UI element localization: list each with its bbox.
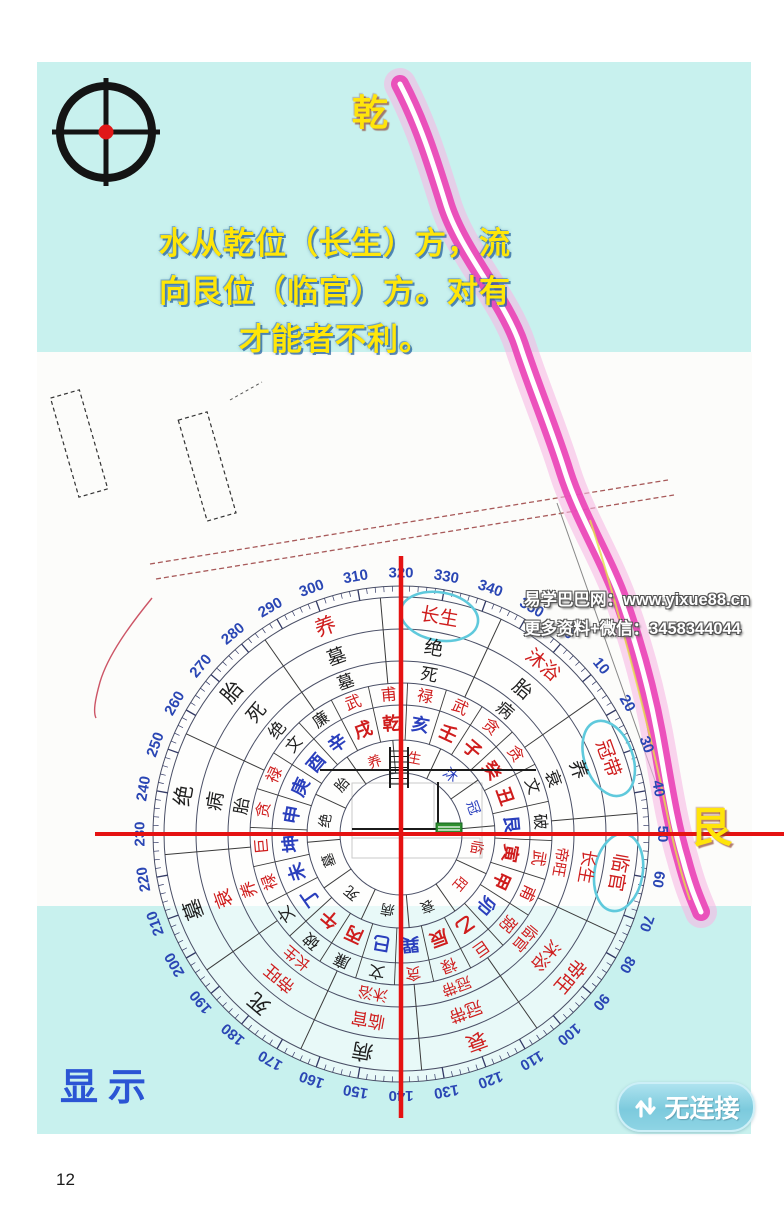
- gen-direction-label: 艮: [690, 794, 732, 855]
- stage-ring-middle-label: 病: [203, 790, 228, 813]
- stage-ring-outer-label: 绝: [171, 783, 197, 808]
- connection-status-button[interactable]: 无连接: [617, 1082, 755, 1132]
- degree-label: 160: [297, 1067, 326, 1092]
- degree-label: 80: [616, 953, 639, 976]
- degree-label: 90: [589, 990, 613, 1014]
- display-button[interactable]: 显示: [60, 1056, 156, 1111]
- caption-line-2: 向艮位（临官）方。对有: [88, 268, 582, 316]
- mountains-ring-label: 乾: [381, 712, 401, 734]
- degree-label: 310: [342, 566, 370, 587]
- nine-stars-ring-label: 甫: [380, 685, 398, 704]
- center-stage-ring-label: 病: [379, 901, 396, 919]
- nine-stars-ring-label: 破: [530, 813, 549, 831]
- nine-stars-ring-label: 贪: [404, 963, 422, 982]
- mountains-ring-label: 寅: [499, 843, 523, 864]
- connection-status-text: 无连接: [664, 1089, 739, 1125]
- degree-label: 70: [636, 913, 658, 934]
- nine-stars-ring-label: 贪: [253, 800, 274, 819]
- degree-label: 330: [433, 566, 461, 587]
- caption-line-3: 才能者不利。: [88, 316, 582, 364]
- stage-ring-middle-label: 绝: [422, 636, 445, 661]
- degree-label: 40: [648, 779, 668, 798]
- degree-label: 60: [648, 870, 668, 889]
- center-stage-ring-label: 临: [468, 839, 486, 856]
- stage-ring-inner-label: 死: [419, 664, 439, 686]
- degree-label: 130: [433, 1081, 461, 1102]
- degree-label: 10: [589, 654, 613, 678]
- degree-label: 150: [342, 1081, 370, 1102]
- stage-ring-outer-label: 病: [350, 1038, 375, 1064]
- qian-direction-label: 乾: [352, 84, 388, 136]
- mountains-ring-label: 巽: [401, 934, 421, 955]
- nine-stars-ring-label: 禄: [416, 686, 435, 707]
- degree-label: 220: [133, 866, 154, 894]
- watermark: 易学巴巴网：www.yixue88.cn 更多资料+微信：3458344044: [524, 586, 784, 644]
- sync-icon: [632, 1094, 659, 1121]
- degree-label: 240: [133, 775, 154, 803]
- page-number: 12: [56, 1170, 75, 1190]
- watermark-wechat: 更多资料+微信：3458344044: [524, 615, 784, 644]
- fengshui-caption: 水从乾位（长生）方，流 向艮位（临官）方。对有 才能者不利。: [88, 220, 582, 364]
- center-stage-ring-label: 绝: [316, 812, 334, 829]
- mountains-ring-label: 申: [280, 804, 304, 825]
- degree-label: 300: [297, 576, 326, 601]
- nine-stars-ring-label: 武: [528, 849, 549, 868]
- degree-label: 340: [476, 576, 505, 601]
- mountains-ring-label: 亥: [410, 713, 431, 737]
- degree-label: 250: [143, 730, 168, 759]
- caption-line-1: 水从乾位（长生）方，流: [88, 220, 582, 268]
- mountains-ring-label: 坤: [279, 834, 301, 854]
- nine-stars-ring-label: 文: [367, 961, 386, 982]
- degree-label: 210: [143, 909, 168, 938]
- watermark-site: 易学巴巴网：www.yixue88.cn: [524, 586, 784, 615]
- mountains-ring-label: 巳: [371, 932, 392, 955]
- crosshair-scope-icon: [50, 76, 162, 188]
- degree-label: 120: [476, 1067, 505, 1092]
- stage-ring-inner-label: 胎: [231, 796, 253, 816]
- nine-stars-ring-label: 巨: [253, 837, 271, 854]
